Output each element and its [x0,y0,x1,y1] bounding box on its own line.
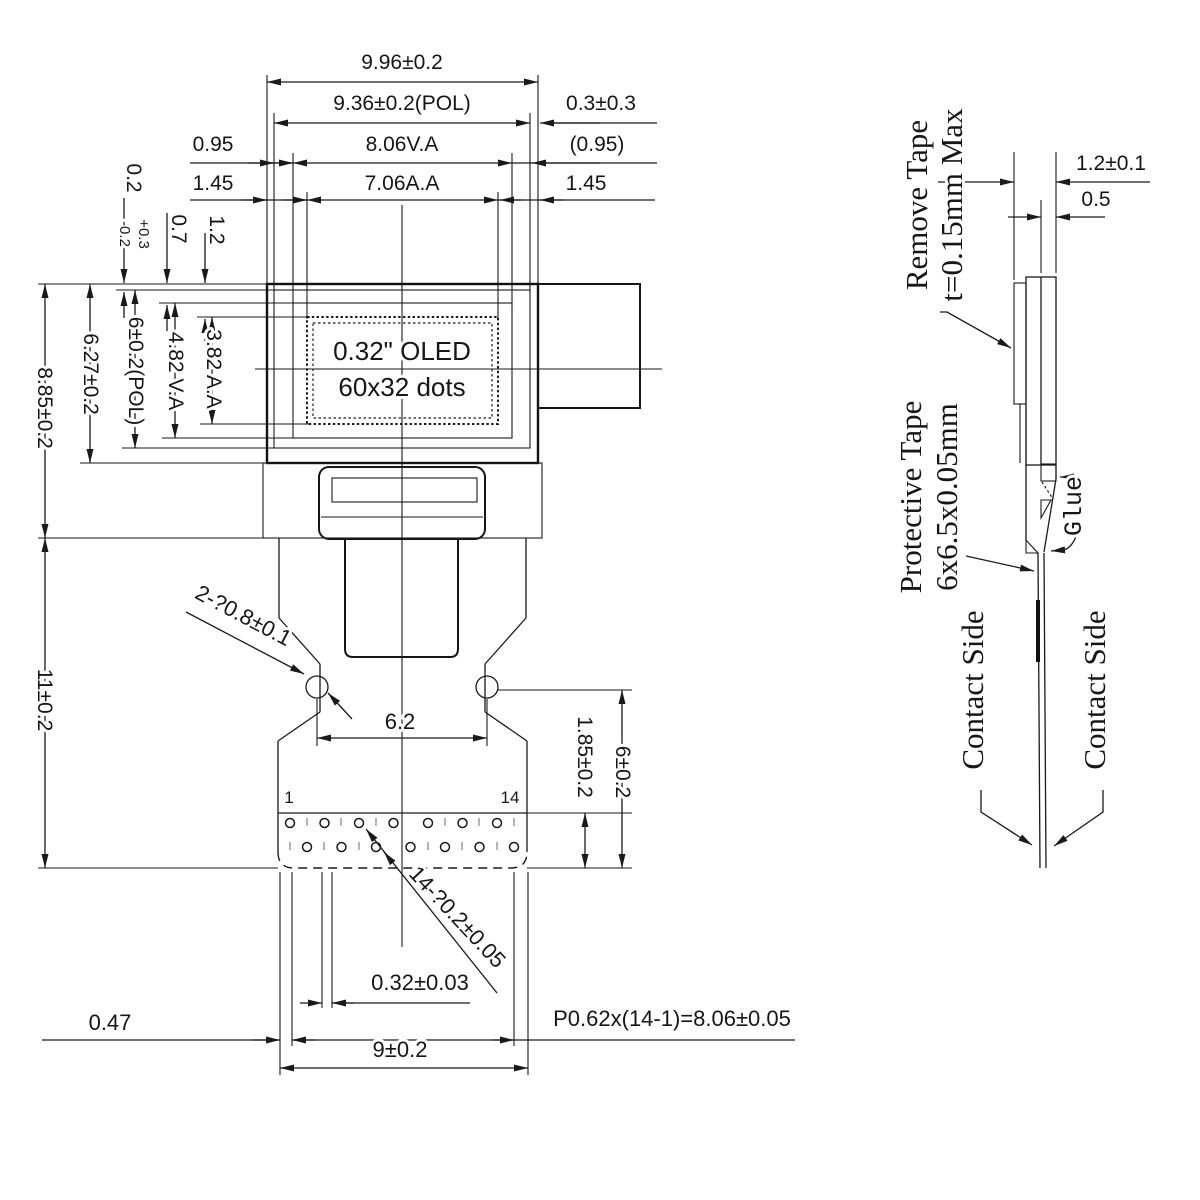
remove-tape-leader [940,312,1011,348]
label-contact-side-right: Contact Side [1077,610,1112,769]
dim-pad-width: 0.32±0.03 [371,970,469,995]
dim-height-module: 6.27±0.2 [79,333,102,415]
protective-tape-leader [966,556,1034,571]
hole-callout-leader-2 [328,693,352,719]
dim-gap-va-left: 0.95 [193,133,234,156]
mechanical-drawing-canvas: 9.96±0.2 9.36±0.2(POL) 0.3±0.3 0.95 8.06… [0,0,1200,1200]
dim-offset-va-top: 0.7 [167,214,190,243]
dim-gap-aa-right: 1.45 [566,172,607,195]
dim-pin-depth-label: 1.85±0.2 [573,716,596,798]
dim-thickness-total: 1.2±0.1 [1076,152,1146,175]
dim-thickness-glass: 0.5 [1081,188,1110,211]
dim-height-aa: 3.82 A.A [202,329,225,408]
dim-gap-right: 0.3±0.3 [566,92,636,115]
dim-hole-spacing-label: 6.2 [385,709,416,734]
tol-plus: +0.3 [135,219,152,249]
remove-tape-strip [1014,283,1026,404]
dim-height-overall: 8.85±0.2 [33,367,56,449]
dim-width-pol: 9.36±0.2(POL) [333,92,471,115]
side-extension-lines [1014,152,1056,280]
pin-number-last: 14 [501,788,520,807]
annotations: 9.96±0.2 9.36±0.2(POL) 0.3±0.3 0.95 8.06… [33,51,1146,1062]
dim-pitch-formula: P0.62x(14-1)=8.06±0.05 [553,1006,791,1031]
dim-height-pol: 6±0.2(POL) [124,317,147,425]
dim-height-tail: 11±0.2 [33,669,56,732]
label-protective-tape-spec: 6x6.5x0.05mm [929,403,964,591]
label-protective-tape: Protective Tape [893,401,928,594]
connector-window [332,478,477,502]
dim-pin-area-height-label: 6±0.2 [611,746,634,798]
dim-gap-va-right: (0.95) [570,133,625,156]
dim-glass-offset-tolerance: 0.2 +0.3 -0.2 [116,163,152,248]
dim-gap-aa-left: 1.45 [193,172,234,195]
glue-dotted-line [1042,482,1053,499]
dim-width-va: 8.06V.A [366,133,439,156]
glue-hatch-upper [1041,464,1056,481]
contact-side-right-leader [1054,790,1103,846]
label-remove-tape-spec: t=0.15mm Max [934,108,969,302]
tol-minus: -0.2 [116,221,133,247]
dim-width-overall: 9.96±0.2 [361,51,443,74]
dim-height-va: 4.82 V.A [164,332,187,411]
tol-base: 0.2 [122,163,145,192]
oled-module-drawing: 9.96±0.2 9.36±0.2(POL) 0.3±0.3 0.95 8.06… [0,0,1200,1200]
dim-width-aa: 7.06A.A [365,172,440,195]
alignment-hole-left [306,676,328,698]
fpc-tail-right [1044,553,1046,868]
dim-edge-margin: 0.47 [89,1010,132,1035]
label-glue: Glue [1060,476,1089,536]
side-dimension-lines [938,182,1150,217]
fpc-tail-contact-strip [1036,600,1040,662]
fpc-fold-hatched-area [538,284,640,408]
side-right-taper [1044,479,1056,552]
display-size-label: 0.32" OLED [333,336,471,366]
label-remove-tape: Remove Tape [899,120,934,290]
callout-pin-holes: 14-?0.2±0.05 [404,861,511,973]
label-contact-side-left: Contact Side [955,610,990,769]
callout-mounting-holes: 2-?0.8±0.1 [191,580,295,651]
contact-side-left-leader [981,790,1032,845]
alignment-hole-right [476,676,498,698]
dim-offset-aa-top: 1.2 [205,215,228,244]
display-resolution-label: 60x32 dots [338,372,465,402]
pin-hole-callout-arrow2 [384,852,392,862]
chamfer-glue-hatch [1026,540,1038,553]
dim-tail-width: 9±0.2 [373,1037,428,1062]
pin-number-first: 1 [284,788,293,807]
